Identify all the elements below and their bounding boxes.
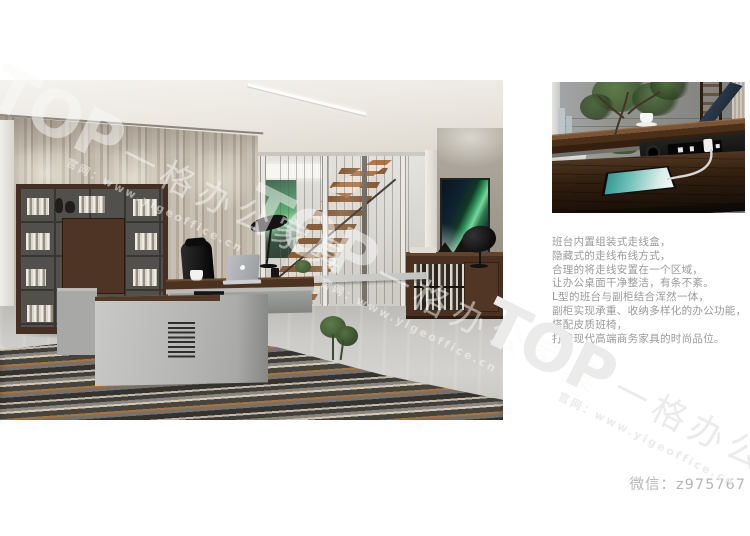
sideboard bbox=[406, 252, 503, 319]
description-line: 合理的将走线安置在一个区域， bbox=[552, 264, 750, 278]
description-line: 让办公桌面干净整洁，有条不紊。 bbox=[552, 277, 750, 291]
power-outlet bbox=[716, 144, 720, 148]
books bbox=[133, 269, 157, 286]
table-lamp-base bbox=[470, 264, 488, 268]
catalog-page: 班台内置组装式走线盒， 隐藏式的走线布线方式， 合理的将走线安置在一个区域， 让… bbox=[0, 0, 750, 500]
bookshelf-doors bbox=[62, 218, 125, 295]
vase bbox=[65, 201, 75, 213]
desk-side-return bbox=[57, 288, 97, 355]
wall-pillar bbox=[0, 120, 14, 314]
cabinet-vents bbox=[168, 322, 195, 360]
description-line: 班台内置组装式走线盒， bbox=[552, 236, 750, 250]
sideboard-shelf-line bbox=[414, 286, 466, 288]
vase bbox=[55, 198, 63, 213]
description-line: 副柜实现承重、收纳多样化的办公功能， bbox=[552, 305, 750, 319]
books bbox=[135, 233, 157, 250]
books bbox=[26, 269, 46, 286]
charger-adapter bbox=[703, 139, 713, 153]
books bbox=[79, 196, 105, 213]
tree-foliage bbox=[580, 94, 614, 120]
description-line: 打造现代高端商务家具的时尚品位。 bbox=[552, 333, 750, 347]
laptop bbox=[226, 254, 260, 281]
wechat-contact: 微信：z975767 bbox=[630, 473, 746, 494]
plant-stem bbox=[332, 334, 334, 360]
desk-plant bbox=[295, 260, 311, 273]
coffee-cup bbox=[190, 270, 203, 279]
detail-photo bbox=[552, 82, 745, 213]
floor-plant bbox=[336, 326, 358, 346]
main-photo bbox=[0, 80, 503, 420]
books bbox=[27, 305, 53, 322]
description-line: 隐藏式的走线布线方式， bbox=[552, 250, 750, 264]
books bbox=[26, 233, 50, 250]
books-on-sideboard bbox=[410, 247, 436, 253]
watermark-brand-cn: 一格办公家具 bbox=[606, 361, 750, 519]
description-line: 搭配皮质班椅， bbox=[552, 319, 750, 333]
power-outlet bbox=[678, 147, 683, 152]
side-cabinet bbox=[95, 294, 268, 386]
power-outlet bbox=[690, 146, 694, 151]
books bbox=[133, 199, 157, 216]
description-line: L型的班台与副柜结合浑然一体， bbox=[552, 291, 750, 305]
sideboard-door bbox=[464, 262, 499, 312]
books bbox=[27, 198, 49, 215]
lower-desk-edge bbox=[552, 202, 745, 213]
product-description: 班台内置组装式走线盒， 隐藏式的走线布线方式， 合理的将走线安置在一个区域， 让… bbox=[552, 236, 750, 346]
